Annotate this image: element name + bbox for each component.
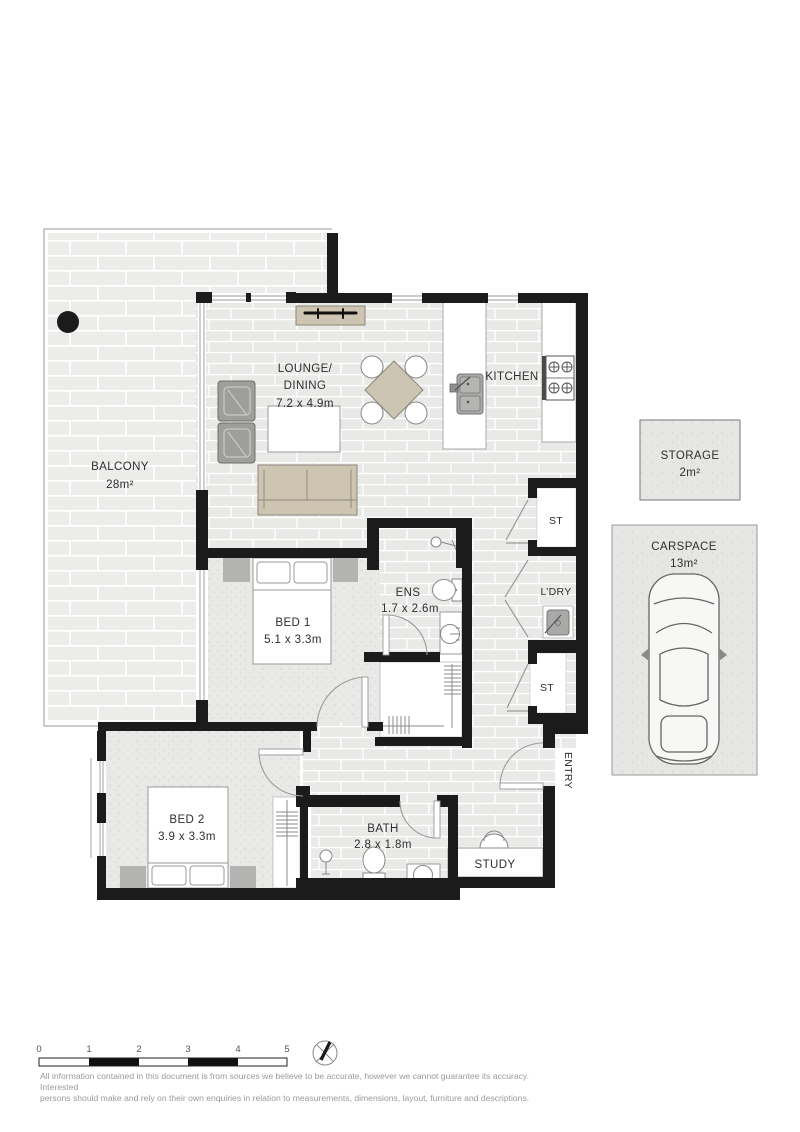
wall-segment: [327, 233, 338, 295]
scale-tick: 5: [284, 1044, 289, 1055]
wall-segment: [422, 293, 488, 303]
wall-segment: [300, 795, 308, 880]
wall-segment: [528, 540, 537, 547]
wall-segment: [528, 488, 537, 498]
window: [392, 294, 422, 302]
scale-segment-black: [188, 1058, 238, 1066]
ensuite-dims: 1.7 x 2.6m: [381, 603, 439, 615]
window: [488, 294, 518, 302]
bath-label: BATH: [367, 823, 398, 835]
scale-tick: 3: [185, 1044, 190, 1055]
coffee-table: [268, 406, 340, 452]
ensuite-label: ENS: [396, 587, 421, 599]
wall-segment: [367, 722, 383, 731]
wall-segment: [208, 548, 378, 558]
toilet: [433, 579, 463, 601]
sofa: [258, 465, 357, 515]
scale-tick: 2: [136, 1044, 141, 1055]
wall-segment: [528, 713, 588, 724]
car-icon: [641, 574, 727, 764]
pillow: [257, 562, 290, 583]
wall-segment: [98, 722, 317, 731]
entry-threshold-floor: [543, 748, 555, 786]
bed2-window: [97, 823, 106, 856]
balcony-tiles-side: [48, 233, 196, 722]
wall-segment: [448, 877, 555, 888]
disclaimer-line-2: persons should make and rely on their ow…: [40, 1093, 560, 1104]
dining-setting: [361, 356, 427, 424]
laundry-trough: [543, 606, 573, 638]
bedside-table: [120, 866, 146, 888]
scale-segment-black: [89, 1058, 139, 1066]
wall-segment: [296, 878, 460, 900]
wall-segment: [306, 795, 400, 807]
wall-segment: [528, 640, 588, 653]
bed2-window: [97, 761, 106, 793]
wall-segment: [196, 490, 208, 570]
scale-tick: 1: [86, 1044, 91, 1055]
lounge-label-line2: DINING: [284, 380, 327, 392]
balcony-sliding-door: [212, 293, 286, 302]
wall-segment: [97, 731, 106, 761]
bed1-dims: 5.1 x 3.3m: [264, 634, 322, 646]
bedside-table: [333, 558, 358, 582]
wall-segment: [303, 731, 311, 752]
wall-segment: [97, 856, 106, 900]
bedside-table: [230, 866, 256, 888]
bath-door-threshold: [400, 795, 437, 807]
living-glass-wall: [198, 303, 206, 490]
wall-segment: [286, 292, 296, 303]
bed2-door-threshold: [303, 752, 311, 786]
balcony-label: BALCONY: [91, 461, 149, 473]
wall-segment: [97, 793, 106, 823]
walk-in-robe: [380, 662, 462, 737]
study-label: STUDY: [475, 859, 516, 871]
wall-segment: [364, 652, 440, 662]
storage-unit: STORAGE 2m²: [640, 420, 740, 500]
lounge-label-line1: LOUNGE/: [278, 363, 333, 375]
laundry-label: L’DRY: [540, 586, 571, 598]
disclaimer-line-1: All information contained in this docume…: [40, 1071, 560, 1093]
wall-segment: [196, 292, 212, 303]
lounge-dims: 7.2 x 4.9m: [276, 398, 334, 410]
tv-unit: [296, 306, 365, 325]
wall-segment: [375, 737, 472, 746]
wall-segment: [528, 653, 537, 664]
wall-segment: [462, 518, 472, 748]
bed2-robe: [273, 797, 300, 888]
scale-tick: 4: [235, 1044, 240, 1055]
pillow: [190, 866, 224, 885]
wall-segment: [576, 293, 588, 734]
storage-label: STORAGE: [661, 450, 720, 462]
wall-segment: [528, 706, 537, 713]
pillow: [294, 562, 327, 583]
bed1-glass-door: [198, 570, 206, 700]
wall-segment: [448, 795, 458, 883]
wall-segment: [528, 547, 588, 556]
storage-area: 2m²: [679, 467, 700, 479]
wall-segment: [543, 723, 588, 734]
scale-bar-outline: [39, 1058, 287, 1066]
armchair: [218, 381, 255, 421]
vanity-basin: [440, 612, 462, 654]
floor-plan-page: STORAGE 2m² CARSPACE 13m² BALCONY 28m² L…: [0, 0, 800, 1132]
pillow: [152, 866, 186, 885]
store-2-label: ST: [540, 682, 554, 694]
wall-segment: [196, 700, 208, 722]
carspace: CARSPACE 13m²: [612, 525, 757, 775]
scale-tick: 0: [36, 1044, 41, 1055]
disclaimer: All information contained in this docume…: [40, 1071, 560, 1104]
wall-segment: [100, 888, 306, 900]
balcony-area: 28m²: [106, 479, 134, 491]
carspace-area: 13m²: [670, 558, 698, 570]
wall-segment: [528, 478, 588, 488]
carspace-label: CARSPACE: [651, 541, 717, 553]
entry-label: ENTRY: [562, 752, 574, 789]
stove-cooktop: [542, 356, 574, 400]
scale-bar: 0 1 2 3 4 5: [36, 1044, 289, 1066]
kitchen-label: KITCHEN: [485, 371, 538, 383]
store-1-label: ST: [549, 515, 563, 527]
wall-segment: [543, 734, 555, 748]
wall-segment: [296, 293, 392, 303]
wall-segment: [543, 786, 555, 888]
bed1-door-threshold: [317, 722, 367, 731]
bed2-label: BED 2: [169, 814, 204, 826]
bath-dims: 2.8 x 1.8m: [354, 839, 412, 851]
balcony-column: [57, 311, 79, 333]
north-arrow-icon: [313, 1041, 337, 1065]
bedside-table: [223, 558, 250, 582]
bed1-label: BED 1: [275, 617, 310, 629]
armchair: [218, 423, 255, 463]
floor-plan-svg: STORAGE 2m² CARSPACE 13m² BALCONY 28m² L…: [0, 0, 800, 1132]
bed2-dims: 3.9 x 3.3m: [158, 831, 216, 843]
